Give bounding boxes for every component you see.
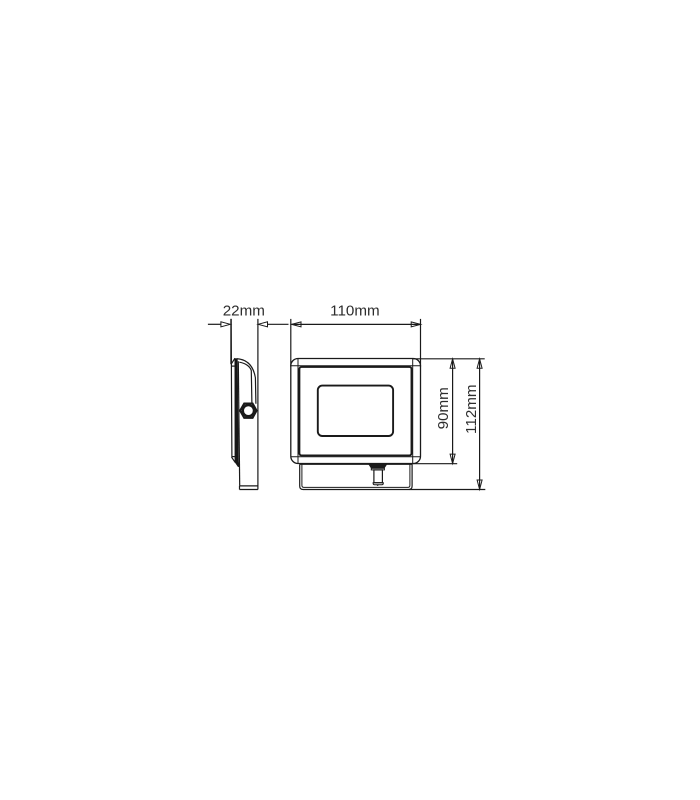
- svg-text:90mm: 90mm: [435, 387, 452, 429]
- svg-text:112mm: 112mm: [463, 384, 480, 434]
- svg-text:22mm: 22mm: [223, 303, 265, 320]
- svg-text:110mm: 110mm: [330, 303, 380, 320]
